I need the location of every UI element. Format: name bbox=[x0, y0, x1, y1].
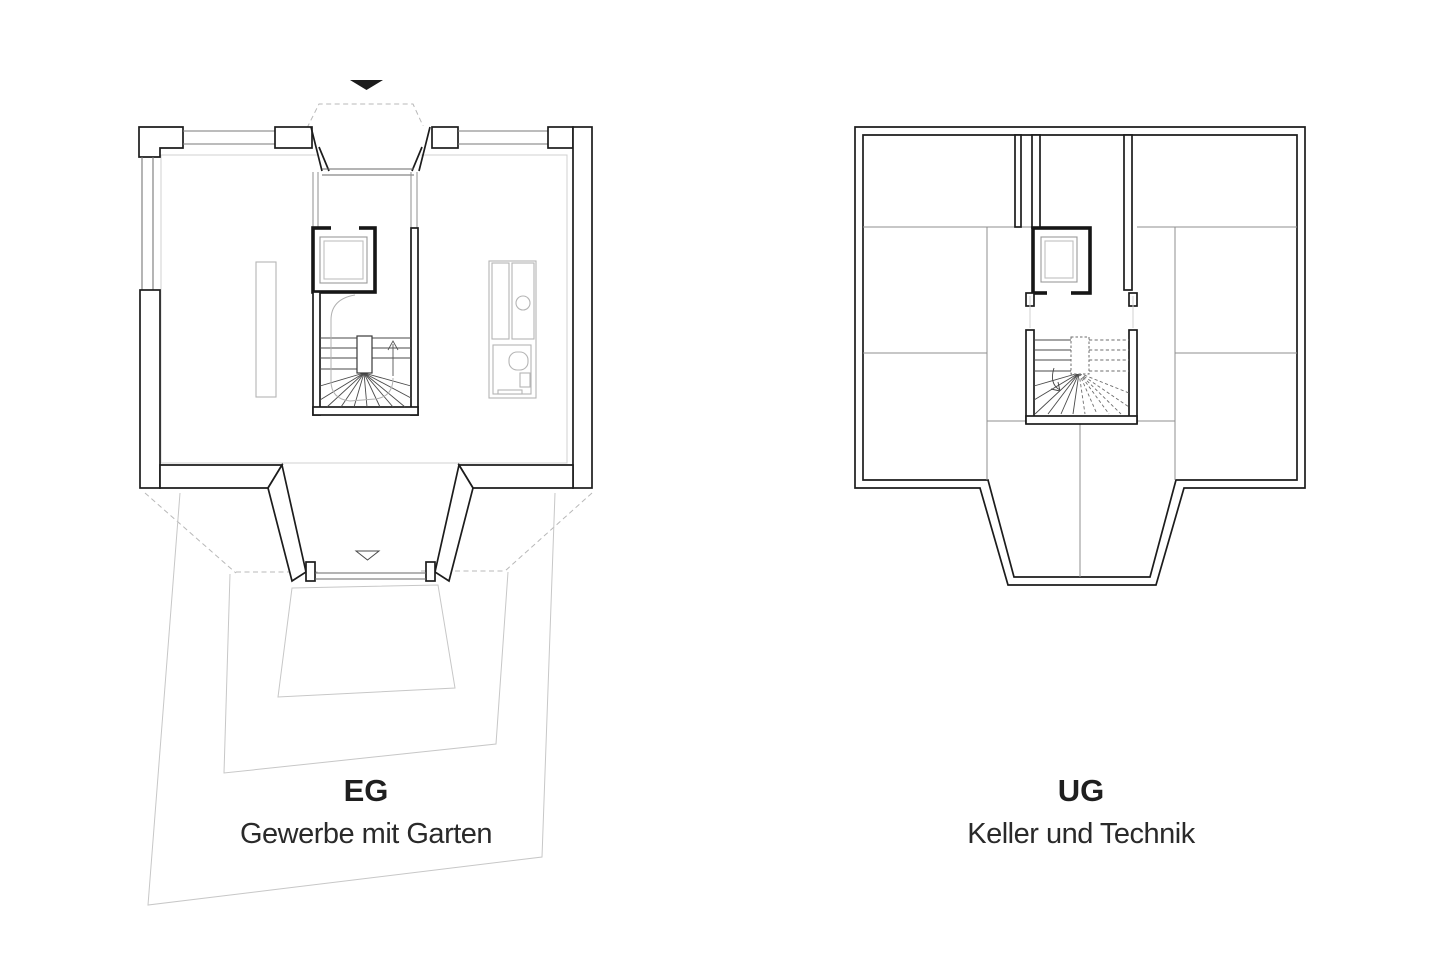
stair-newel bbox=[357, 336, 372, 373]
exit-stub-left bbox=[306, 562, 315, 581]
duct-shaft-wall bbox=[1015, 135, 1021, 227]
kitchen-cabinet bbox=[492, 263, 509, 339]
eg-floor-plan: EG Gewerbe mit Garten bbox=[139, 80, 592, 850]
stairwell-wall-right bbox=[1129, 330, 1137, 423]
upper-floor-projection-dashed bbox=[145, 493, 592, 573]
ug-floor-plan: UG Keller und Technik bbox=[855, 127, 1305, 850]
kitchenette-wc-block bbox=[489, 261, 536, 398]
toilet-icon bbox=[509, 352, 528, 370]
canopy-projection-dashed bbox=[307, 104, 424, 128]
counter-furniture bbox=[256, 262, 276, 397]
floor-plans-canvas: EG Gewerbe mit Garten bbox=[0, 0, 1450, 967]
exit-splay-right bbox=[435, 465, 473, 581]
ug-plan-title: UG bbox=[1058, 773, 1105, 808]
exit-splay-left bbox=[268, 465, 306, 581]
drawing-sheet: EG Gewerbe mit Garten bbox=[0, 0, 1450, 967]
garden-plot-inner bbox=[278, 585, 455, 697]
eg-plan-title: EG bbox=[344, 773, 389, 808]
garden-plot-middle bbox=[224, 572, 508, 773]
stairwell-wall-bottom bbox=[1026, 416, 1137, 424]
wc-door bbox=[498, 390, 522, 394]
eg-vestibule-walls bbox=[313, 172, 417, 228]
entrance-recess-pocket bbox=[310, 126, 430, 172]
stairwell-wall-left bbox=[313, 292, 320, 415]
north-entry-arrow-icon bbox=[350, 80, 383, 90]
kitchen-worktop bbox=[512, 263, 534, 339]
eg-core bbox=[313, 224, 418, 415]
stairwell-wall-left bbox=[1026, 330, 1034, 423]
eg-plan-subtitle: Gewerbe mit Garten bbox=[240, 818, 492, 850]
garden-exit-marker-icon bbox=[356, 551, 379, 560]
stair-up-arrow-icon bbox=[388, 341, 398, 376]
exit-stub-right bbox=[426, 562, 435, 581]
ug-plan-subtitle: Keller und Technik bbox=[967, 818, 1195, 850]
technik-room-wall-right bbox=[1124, 135, 1132, 290]
stair-newel bbox=[1071, 337, 1089, 374]
cistern bbox=[520, 373, 530, 387]
stairwell-wall-right bbox=[411, 228, 418, 415]
stairwell-wall-bottom bbox=[313, 407, 418, 415]
technik-room-wall-left bbox=[1032, 135, 1040, 228]
